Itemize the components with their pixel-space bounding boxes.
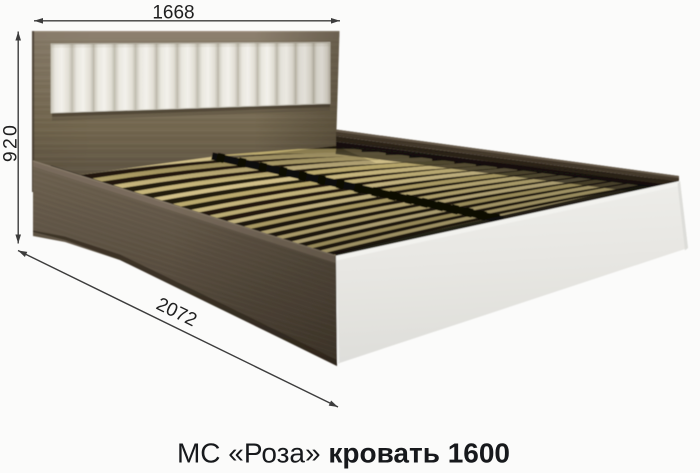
svg-text:МС «Роза» кровать 1600: МС «Роза» кровать 1600 — [177, 438, 510, 469]
svg-text:920: 920 — [0, 123, 22, 162]
svg-text:1668: 1668 — [152, 3, 194, 24]
